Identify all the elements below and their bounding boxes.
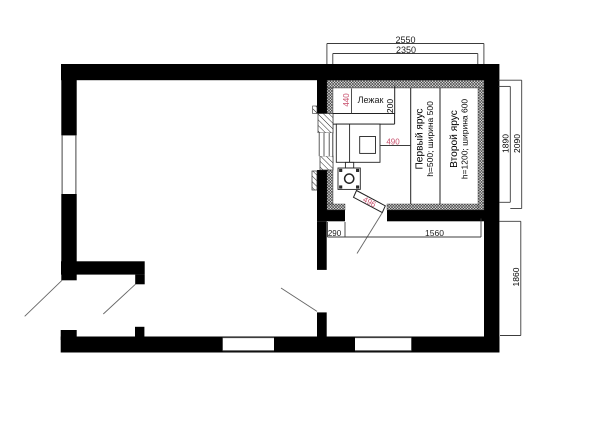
svg-text:1860: 1860 [511, 267, 521, 286]
svg-text:200: 200 [385, 99, 395, 113]
svg-text:Второй ярус: Второй ярус [449, 110, 460, 168]
svg-text:h=500; ширина 500: h=500; ширина 500 [425, 101, 435, 177]
svg-text:1890: 1890 [501, 134, 511, 153]
svg-text:h=1200; ширина 600: h=1200; ширина 600 [460, 99, 470, 180]
svg-text:440: 440 [342, 93, 351, 107]
svg-text:1560: 1560 [425, 228, 444, 238]
svg-text:2550: 2550 [395, 35, 415, 45]
svg-text:Лежак: Лежак [358, 95, 384, 105]
svg-text:290: 290 [328, 229, 342, 238]
svg-text:Первый ярус: Первый ярус [414, 108, 425, 169]
svg-text:490: 490 [386, 138, 400, 147]
svg-text:2090: 2090 [512, 134, 522, 153]
svg-text:2350: 2350 [396, 45, 416, 55]
